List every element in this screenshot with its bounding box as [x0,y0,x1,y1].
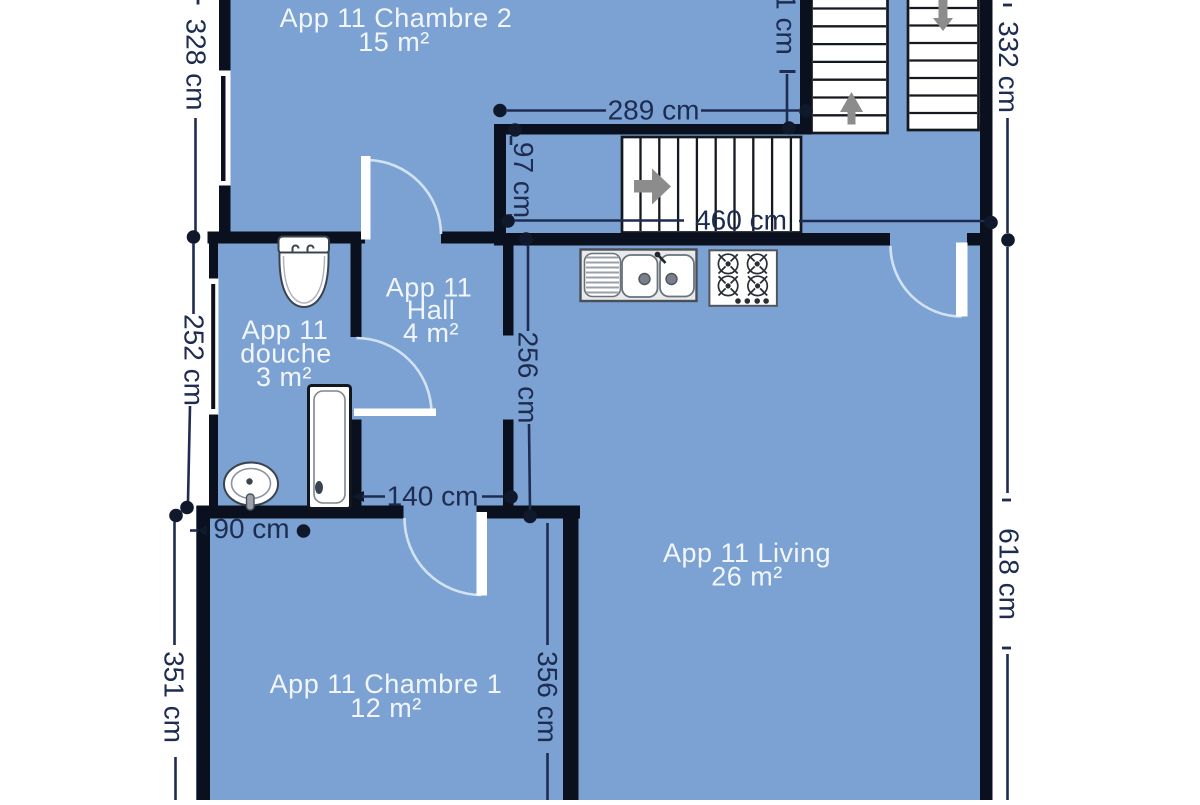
svg-text:15 m²: 15 m² [358,27,430,57]
svg-text:256 cm: 256 cm [513,332,544,424]
svg-text:289 cm: 289 cm [608,95,700,126]
svg-text:332 cm: 332 cm [993,21,1024,113]
svg-text:90 cm: 90 cm [213,513,289,544]
svg-text:618 cm: 618 cm [994,528,1025,620]
svg-text:26 m²: 26 m² [711,562,783,592]
svg-text:140 cm: 140 cm [387,481,479,512]
svg-text:356 cm: 356 cm [532,651,563,743]
svg-text:328 cm: 328 cm [181,19,212,111]
svg-text:12 m²: 12 m² [350,693,422,723]
svg-text:460 cm: 460 cm [695,205,787,236]
svg-text:252 cm: 252 cm [179,314,210,406]
svg-text:4 m²: 4 m² [403,318,459,348]
svg-text:97 cm: 97 cm [508,142,539,218]
svg-text:3 m²: 3 m² [256,362,312,392]
svg-text:351 cm: 351 cm [159,651,190,743]
svg-text:1 cm: 1 cm [771,0,802,55]
